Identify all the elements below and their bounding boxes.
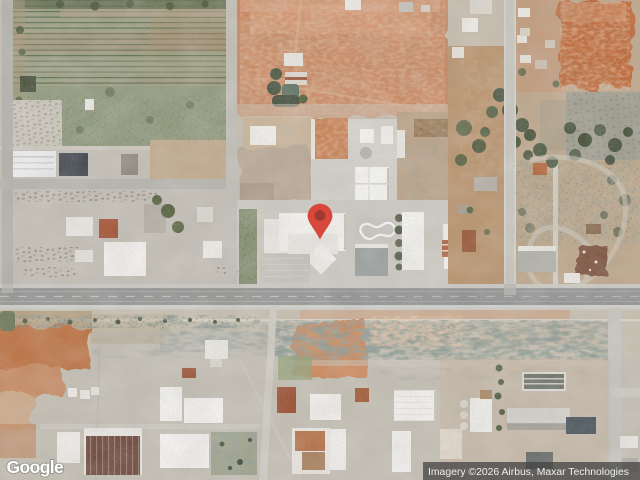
svg-text:Google: Google	[7, 457, 65, 477]
svg-text:Imagery ©2026 Airbus, Maxar Te: Imagery ©2026 Airbus, Maxar Technologies	[428, 467, 629, 478]
